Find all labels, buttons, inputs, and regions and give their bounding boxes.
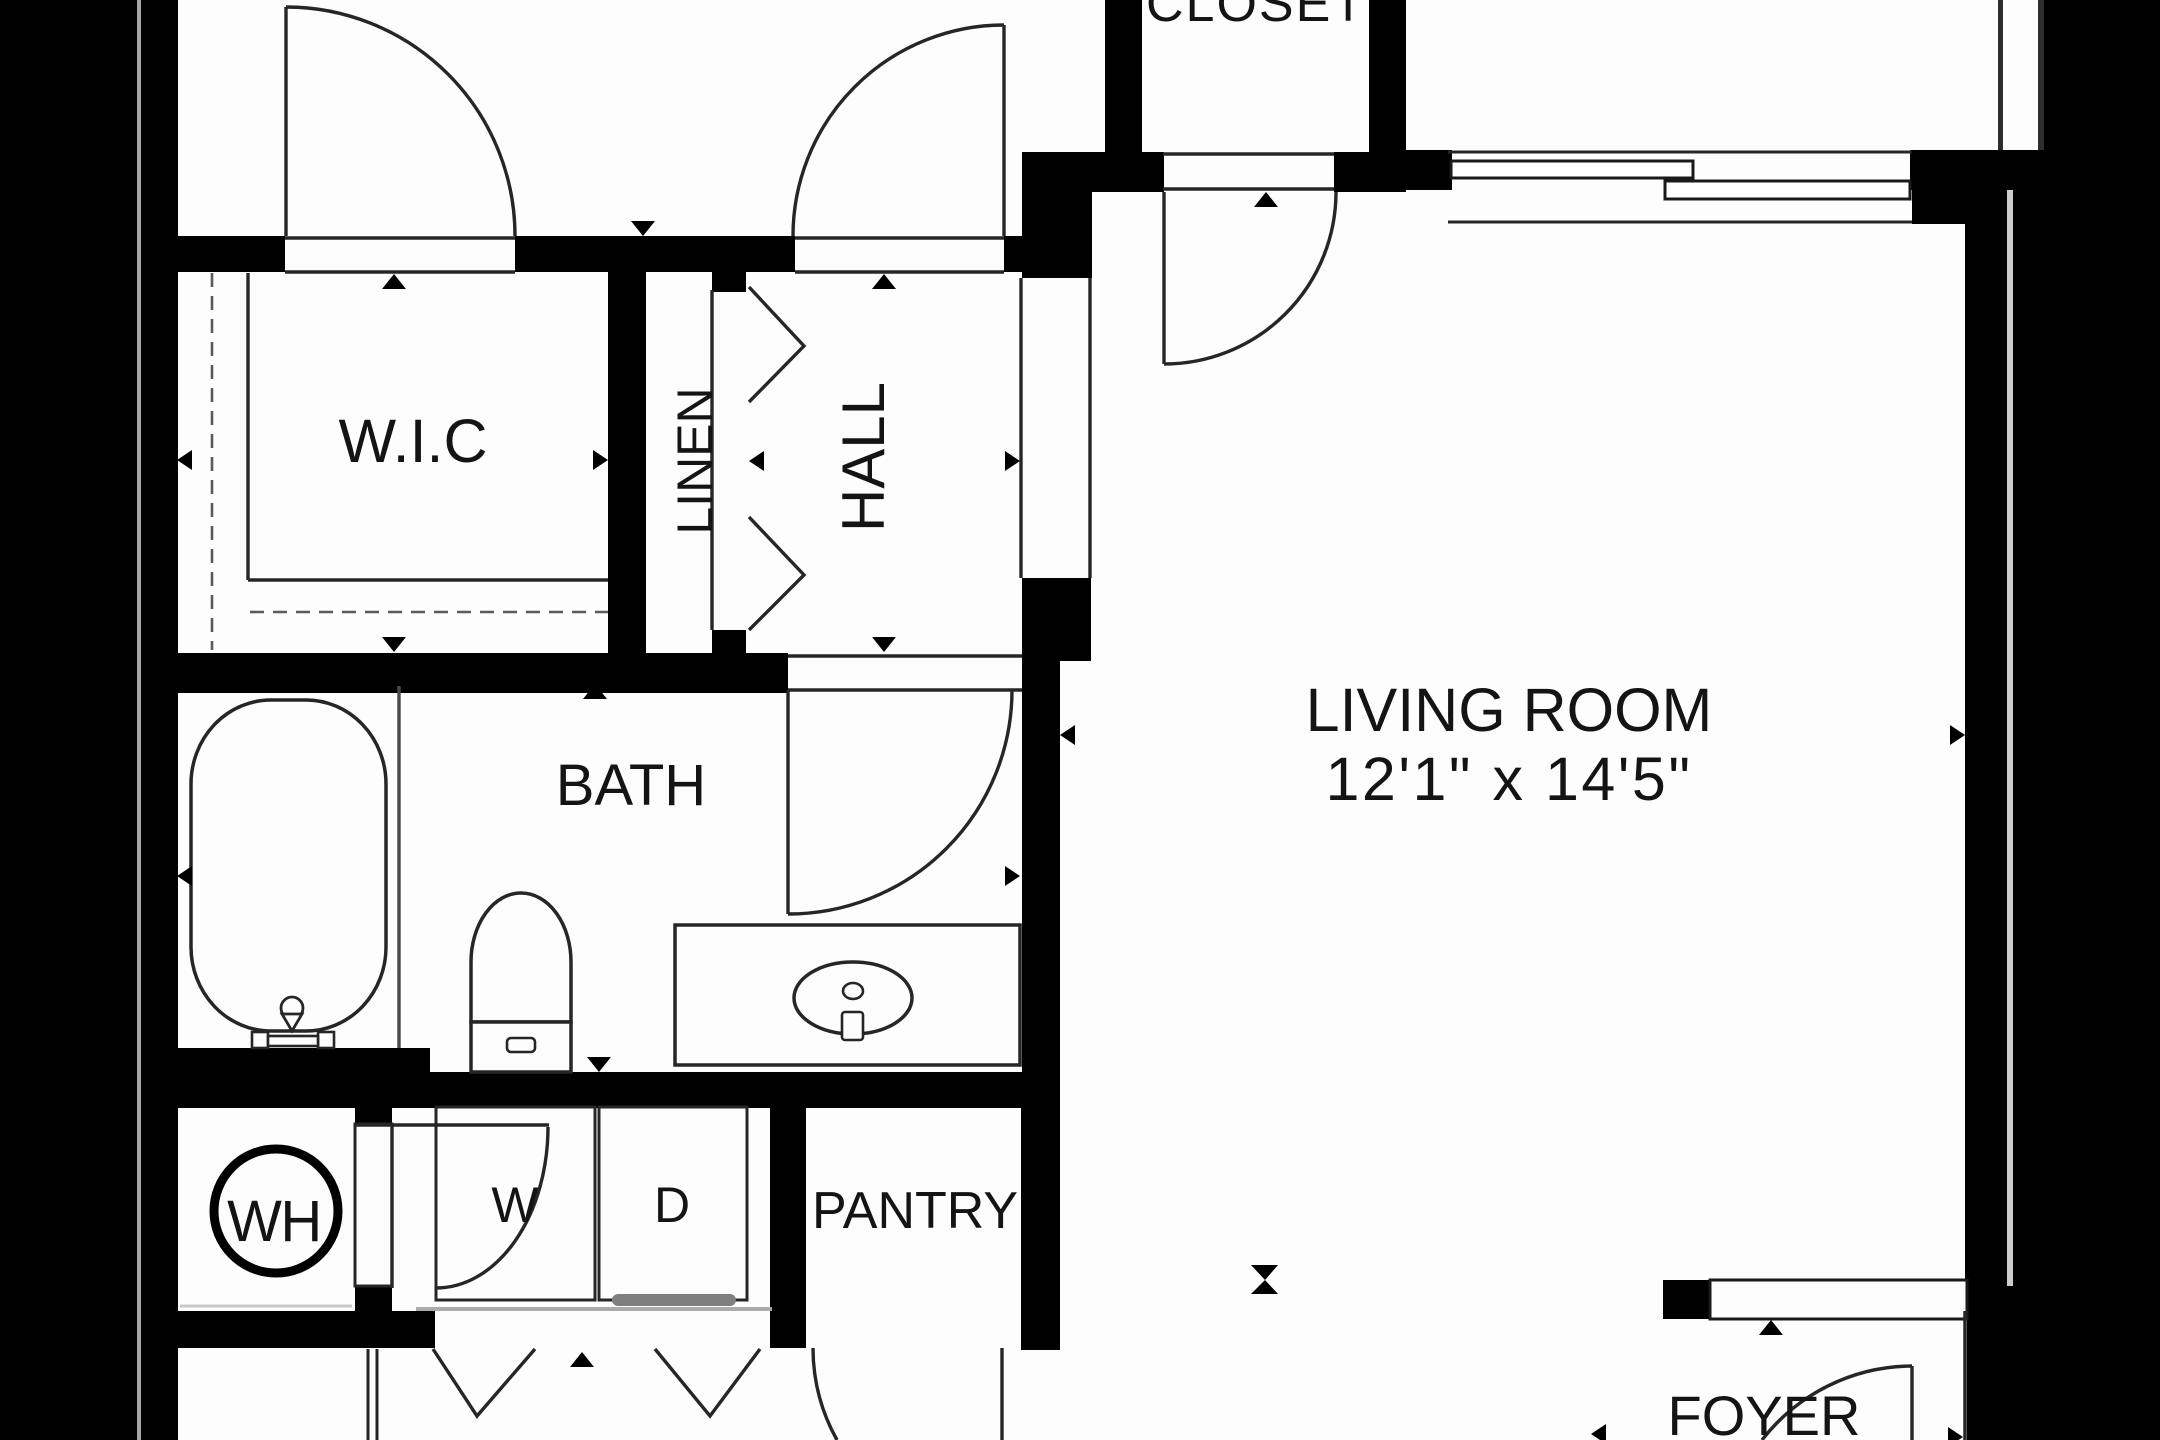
svg-text:BATH: BATH [556, 753, 706, 818]
svg-text:12'1" x 14'5": 12'1" x 14'5" [1325, 745, 1692, 813]
svg-text:WH: WH [227, 1189, 321, 1254]
svg-text:W: W [491, 1177, 539, 1233]
svg-text:HALL: HALL [830, 382, 897, 532]
svg-text:W.I.C: W.I.C [338, 407, 487, 475]
svg-text:PANTRY: PANTRY [812, 1182, 1018, 1240]
svg-text:LINEN: LINEN [667, 387, 723, 534]
svg-text:D: D [654, 1177, 690, 1233]
svg-text:CLOSET: CLOSET [1146, 0, 1366, 33]
svg-text:FOYER: FOYER [1668, 1384, 1861, 1440]
svg-text:LIVING ROOM: LIVING ROOM [1306, 676, 1713, 744]
